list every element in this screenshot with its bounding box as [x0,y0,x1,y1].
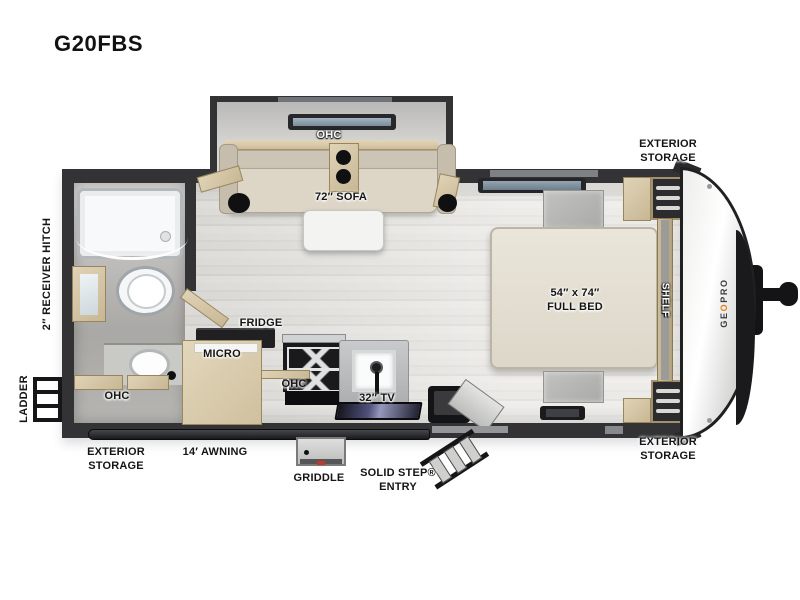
awning-roll [88,429,430,440]
range-trim [282,334,346,343]
sofa-ohc-label: OHC [316,128,341,142]
sofa-label: 72″ SOFA [315,190,367,204]
ladder-rung [37,390,58,394]
console-cupholder-2 [336,169,351,184]
rear-ladder [33,377,62,422]
rod [656,389,680,393]
nose-rivet-bottom [707,418,712,423]
bathroom-wall [185,169,196,291]
console-cupholder-1 [336,150,351,165]
range-base [285,391,345,405]
awning-label: 14′ AWNING [183,445,248,459]
front-wardrobe-bottom-rods [651,380,683,423]
bed-foot-bench [543,371,604,403]
logo-part2: PRO [719,278,729,302]
wall-bracket [605,426,623,434]
logo-part1: GE [719,311,729,327]
label-line: 54″ x 74″ [547,286,603,300]
front-bottom-exterior-storage-label: EXTERIOR STORAGE [639,435,697,463]
bedroom-window-glass [483,181,581,190]
label-line: SOLID STEP® [360,466,436,480]
front-wardrobe-top [623,177,651,221]
label-line: EXTERIOR [639,137,697,151]
rod [656,399,680,403]
floor-tablet-screen [546,409,579,417]
receiver-hitch-label: 2″ RECEIVER HITCH [41,218,53,330]
bath-ohc-cabinet-right [127,375,169,390]
ladder-rung [37,404,58,408]
floorplan-canvas: G20FBS [0,0,800,600]
range-burner-1 [287,347,345,370]
bath-ohc-cabinet-left [74,375,123,390]
bath-ohc-label: OHC [104,389,129,403]
shelf-label: SHELF [660,283,671,317]
front-wardrobe-bottom [623,398,651,423]
geo-pro-logo: GEOPRO [719,278,729,327]
rod [656,196,680,200]
toilet-bowl [127,274,166,309]
sofa-table [303,210,384,251]
ladder-label: LADDER [18,375,30,423]
solid-step-entry-label: SOLID STEP® ENTRY [360,466,436,494]
griddle-label: GRIDDLE [294,471,345,485]
slideout-window-glass [293,118,391,126]
nose-dark-band [736,230,755,425]
front-nose-cap [680,167,756,439]
bath-mirror-glass [80,274,98,315]
bed-headboard-bench [543,190,604,229]
label-line: STORAGE [639,449,697,463]
hitch-coupler [779,282,798,306]
label-line: ENTRY [360,480,436,494]
label-line: EXTERIOR [639,435,697,449]
label-line: EXTERIOR [87,445,145,459]
fridge-label: FRIDGE [240,316,283,330]
rear-exterior-storage-label: EXTERIOR STORAGE [87,445,145,473]
logo-accent-o: O [719,303,729,312]
label-line: STORAGE [639,151,697,165]
front-top-exterior-storage-label: EXTERIOR STORAGE [639,137,697,165]
bedroom-window-opening [490,170,598,177]
cupholder-left [228,193,250,213]
rod [656,409,680,413]
rod [656,206,680,210]
griddle-igniter [317,461,325,465]
micro-label: MICRO [203,347,241,361]
front-wardrobe-top-rods [651,177,683,220]
kitchen-ohc-label: OHC [281,377,306,391]
tv-label: 32″ TV [359,391,395,405]
model-title: G20FBS [54,31,143,57]
nose-rivet-top [707,184,712,189]
label-line: FULL BED [547,300,603,314]
rod [656,186,680,190]
shower-curtain-arc [76,216,188,260]
griddle-knob [304,450,309,455]
label-line: STORAGE [87,459,145,473]
bed-label: 54″ x 74″ FULL BED [547,286,603,314]
cupholder-right [438,194,457,212]
